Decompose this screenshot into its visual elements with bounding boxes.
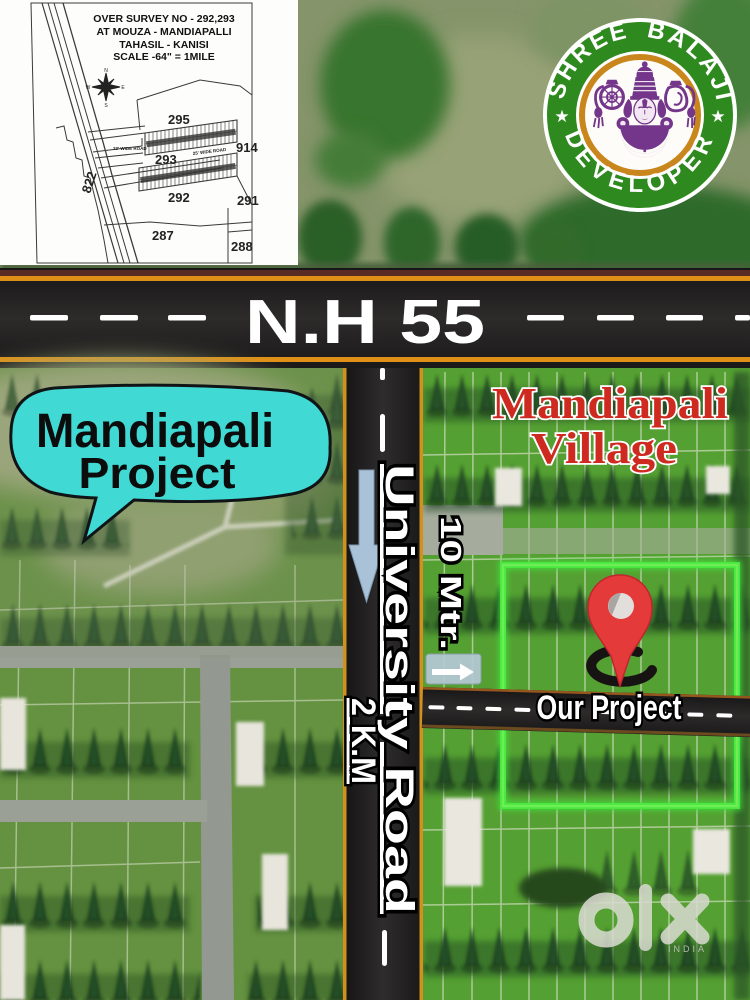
svg-text:292: 292 xyxy=(168,190,190,205)
svg-text:288: 288 xyxy=(231,239,253,254)
svg-text:Our Project: Our Project xyxy=(537,689,682,727)
svg-text:293: 293 xyxy=(155,152,177,167)
svg-text:N: N xyxy=(104,68,108,74)
svg-text:★: ★ xyxy=(710,107,725,126)
svg-text:Project: Project xyxy=(79,449,236,498)
svg-text:AT MOUZA - MANDIAPALLI: AT MOUZA - MANDIAPALLI xyxy=(96,26,231,38)
svg-text:287: 287 xyxy=(152,228,174,243)
svg-text:914: 914 xyxy=(236,140,258,155)
svg-text:W: W xyxy=(86,85,91,91)
svg-text:INDIA: INDIA xyxy=(668,944,707,954)
svg-text:10 Mtr.: 10 Mtr. xyxy=(434,516,466,650)
svg-text:295: 295 xyxy=(168,112,190,127)
svg-text:University Road: University Road xyxy=(377,464,421,914)
svg-text:Mandiapali: Mandiapali xyxy=(492,379,728,428)
svg-text:N.H 55: N.H 55 xyxy=(245,288,485,357)
svg-text:TAHASIL - KANISI: TAHASIL - KANISI xyxy=(119,39,209,51)
svg-text:★: ★ xyxy=(554,107,569,126)
svg-text:291: 291 xyxy=(237,193,259,208)
svg-text:OVER SURVEY NO - 292,293: OVER SURVEY NO - 292,293 xyxy=(93,13,235,25)
svg-text:23' WIDE ROAD: 23' WIDE ROAD xyxy=(113,146,147,151)
svg-text:Village: Village xyxy=(531,424,677,473)
svg-text:SCALE -64" = 1MILE: SCALE -64" = 1MILE xyxy=(113,51,215,63)
svg-text:2 K.M: 2 K.M xyxy=(344,698,382,784)
